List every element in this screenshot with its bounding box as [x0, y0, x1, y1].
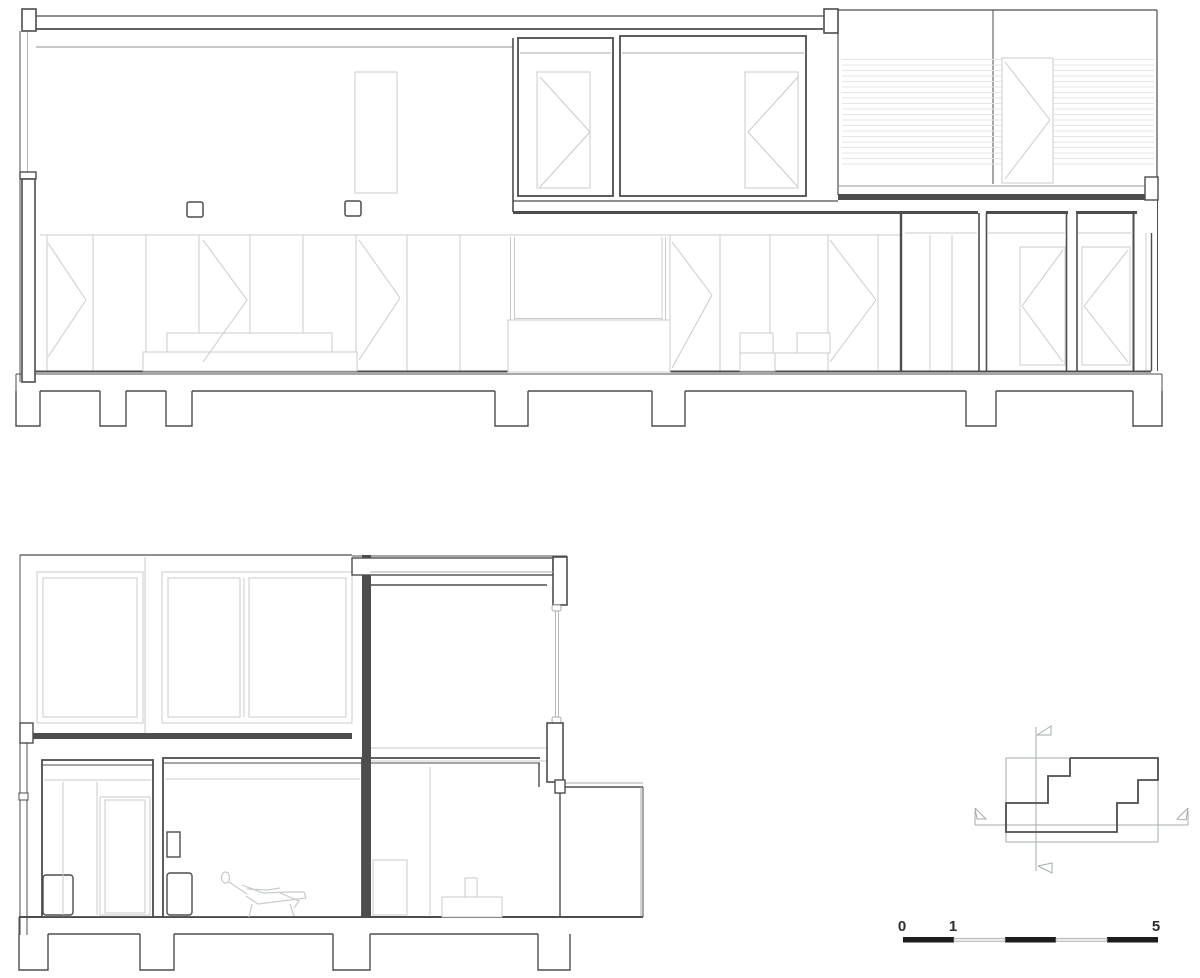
key-plan-diagram: [975, 726, 1188, 873]
door-leaf: [537, 72, 590, 188]
longitudinal-section-drawing: [16, 9, 1162, 426]
footing: [16, 391, 40, 426]
building-footprint: [1006, 758, 1158, 832]
door-leaf: [745, 72, 798, 188]
fixture: [167, 873, 192, 915]
scale-segment: [1056, 938, 1107, 941]
section-arrow: [1037, 726, 1051, 735]
door-leaf: [373, 860, 407, 915]
footing: [166, 391, 192, 426]
footing: [100, 391, 126, 426]
cabinet: [740, 333, 773, 353]
fixture: [465, 878, 477, 897]
bench: [167, 333, 332, 352]
section-arrow: [975, 808, 986, 819]
cross-section-drawing: [19, 555, 643, 970]
section-arrow: [1038, 863, 1052, 873]
footing: [140, 934, 174, 970]
section-arrow: [1177, 808, 1188, 820]
scale-segment: [903, 937, 954, 943]
scale-segment: [954, 938, 1005, 941]
architectural-drawing-canvas: 015: [0, 0, 1200, 978]
scale-label: 5: [1152, 918, 1160, 935]
footing: [495, 391, 528, 426]
door-leaf: [1002, 58, 1053, 183]
scale-segment: [1005, 937, 1056, 943]
door-leaf: [1082, 247, 1130, 365]
cable-anchor: [547, 723, 563, 782]
fixture: [167, 832, 180, 857]
bed: [508, 320, 670, 372]
door-leaf: [1020, 247, 1065, 365]
person-head: [222, 872, 230, 883]
scale-label: 1: [949, 918, 957, 935]
footing: [19, 934, 48, 970]
scale-bar: 015: [898, 918, 1160, 943]
footing: [333, 934, 370, 970]
footing: [1133, 391, 1162, 426]
footing: [652, 391, 685, 426]
footing: [538, 934, 570, 970]
site-outline: [1006, 758, 1158, 842]
footing: [966, 391, 996, 426]
fixture: [43, 875, 73, 915]
cut-wall: [362, 555, 371, 917]
scale-segment: [1107, 937, 1158, 943]
scale-label: 0: [898, 918, 906, 935]
drawing-sheet: 015: [0, 0, 1200, 978]
